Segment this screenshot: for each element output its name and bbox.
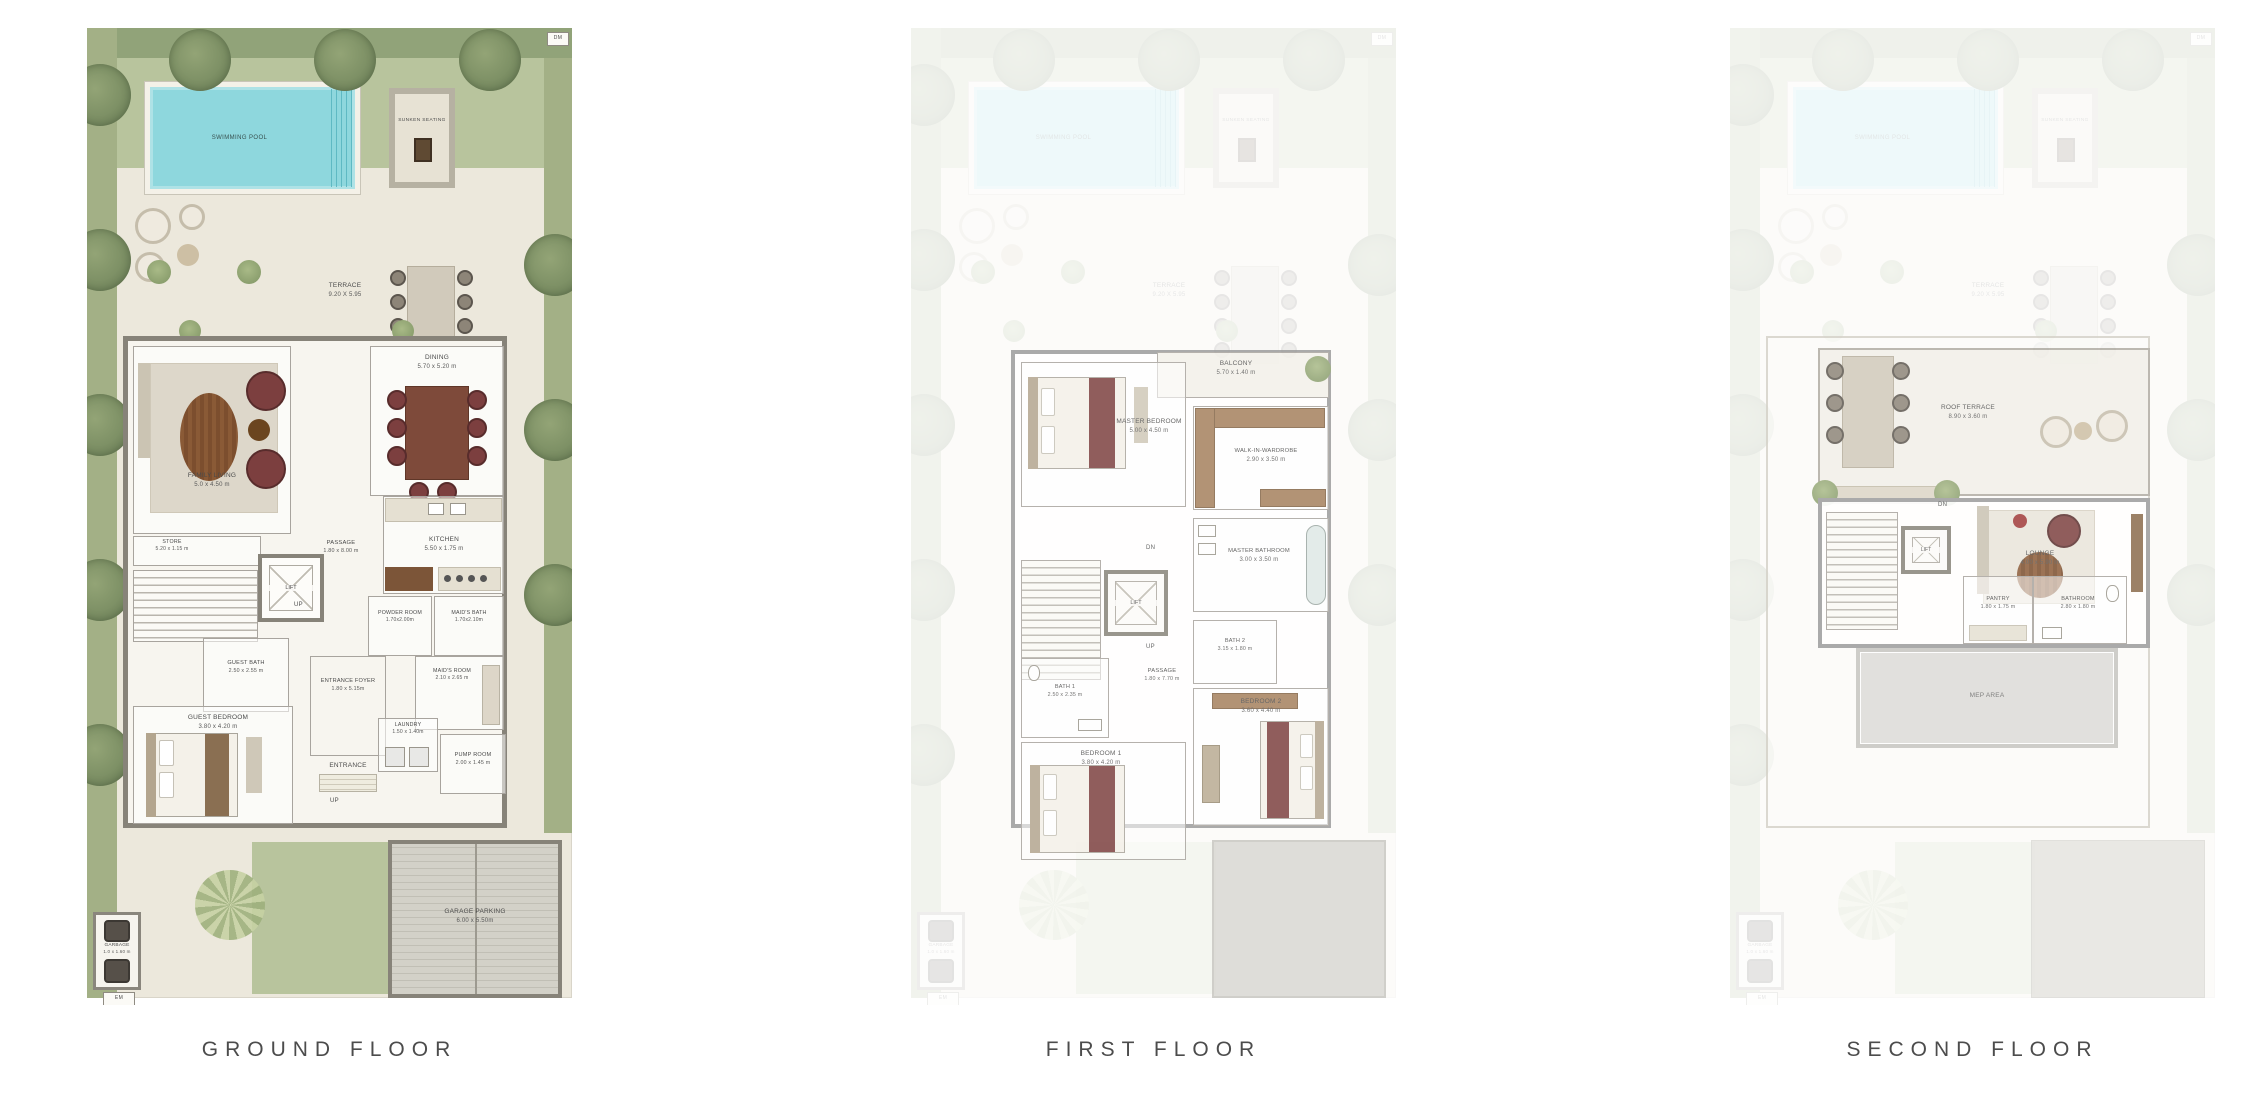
passage-label: PASSAGE 1.80 x 8.00 m <box>313 540 369 555</box>
kitchen-label: KITCHEN 5.50 x 1.75 m <box>399 536 489 553</box>
ground-floor-plan: SWIMMING POOL SUNKEN SEATING TERRACE 9.2… <box>87 20 572 1005</box>
pump-room-label: PUMP ROOM 2.00 x 1.45 m <box>443 752 503 767</box>
terrace-side-table <box>2074 422 2092 440</box>
up-drive-annotation: UP <box>330 798 339 804</box>
first-floor-plan: SWIMMING POOL SUNKEN SEATING TERRACE 9.2… <box>911 20 1396 1005</box>
dining-table <box>405 386 469 480</box>
pillow <box>1043 774 1057 800</box>
lift: LIFT <box>1901 526 1951 574</box>
headboard <box>1030 765 1040 853</box>
terrace-chair <box>1826 362 1844 380</box>
terrace-lounge-chair <box>2096 410 2128 442</box>
guest-bath-label: GUEST BATH 2.50 x 2.55 m <box>209 660 283 675</box>
burner <box>480 575 487 582</box>
bathroom-label: BATHROOM 2.80 x 1.80 m <box>2042 596 2114 611</box>
pouf <box>248 419 270 441</box>
terrace-chair <box>1892 426 1910 444</box>
pantry-counter <box>1969 625 2027 641</box>
wc <box>1028 665 1040 681</box>
bathtub <box>1306 525 1326 605</box>
entrance-label: ENTRANCE <box>317 762 379 771</box>
balcony-plant <box>1305 356 1331 382</box>
room-entrance-foyer <box>310 656 386 756</box>
pantry-label: PANTRY 1.80 x 1.75 m <box>1968 596 2028 611</box>
dining-chair <box>387 446 407 466</box>
master-bathroom-label: MASTER BATHROOM 3.00 x 3.50 m <box>1207 548 1311 564</box>
second-floor-plan: SWIMMING POOL SUNKEN SEATING TERRACE 9.2… <box>1730 20 2215 1005</box>
up-annotation: UP <box>294 602 303 608</box>
bench <box>246 737 262 793</box>
dining-chair <box>467 418 487 438</box>
store-label: STORE 5.20 x 1.15 m <box>137 539 207 553</box>
room-master-bathroom <box>1193 518 1329 612</box>
bed <box>1260 721 1324 819</box>
dining-chair <box>387 390 407 410</box>
garage-roof <box>2031 840 2205 998</box>
washer <box>385 747 405 767</box>
garbage-label: GARBAGE 1.0 x 1.60 m <box>90 943 144 956</box>
maids-room-label: MAID'S ROOM 2.10 x 2.65 m <box>417 668 487 682</box>
dining-chair <box>467 446 487 466</box>
sink <box>450 503 466 515</box>
bedroom-2-label: BEDROOM 2 3.60 x 4.40 m <box>1211 698 1311 715</box>
pillow <box>1041 426 1055 454</box>
first-floor-title: FIRST FLOOR <box>911 1038 1396 1062</box>
terrace-label: TERRACE 9.20 X 5.95 <box>285 282 405 299</box>
wardrobe-unit <box>1260 489 1326 507</box>
family-living-label: FAMILY LIVING 5.0 x 4.50 m <box>157 472 267 489</box>
ground-house-layer: FAMILY LIVING 5.0 x 4.50 m DINING 5.70 x… <box>87 20 572 1005</box>
headboard <box>146 733 156 817</box>
terrace-chair <box>1892 362 1910 380</box>
sofa <box>1202 745 1220 803</box>
burner <box>468 575 475 582</box>
bath-1-label: BATH 1 2.50 x 2.35 m <box>1033 684 1097 699</box>
room-powder <box>368 596 432 656</box>
dining-label: DINING 5.70 x 5.20 m <box>380 354 494 371</box>
lounge-armchair <box>2047 514 2081 548</box>
master-bedroom-label: MASTER BEDROOM 5.00 x 4.50 m <box>1099 418 1199 435</box>
pillow <box>159 740 174 766</box>
burner <box>444 575 451 582</box>
headboard <box>1315 721 1324 819</box>
lift: LIFT <box>258 554 324 622</box>
tv-unit <box>138 363 150 458</box>
staircase <box>133 570 258 642</box>
up-annotation: UP <box>1146 644 1155 650</box>
sink <box>1198 525 1216 537</box>
kitchen-island <box>385 567 433 591</box>
terrace-chair <box>1826 426 1844 444</box>
dn-annotation: DN <box>1146 545 1155 551</box>
room-maids-bath <box>434 596 504 656</box>
balcony-label: BALCONY 5.70 x 1.40 m <box>1191 360 1281 377</box>
second-plan-layer: ROOF TERRACE 8.90 x 3.60 m LIFT DN <box>1730 20 2215 1005</box>
headboard <box>1028 377 1038 469</box>
sink <box>428 503 444 515</box>
terrace-chair <box>1892 394 1910 412</box>
mep-label: MEP AREA <box>1942 692 2032 701</box>
dn-annotation: DN <box>1938 502 1947 508</box>
terrace-chair <box>1826 394 1844 412</box>
entrance-foyer-label: ENTRANCE FOYER 1.80 x 5.15m <box>313 678 383 693</box>
dining-chair <box>467 390 487 410</box>
burner <box>456 575 463 582</box>
bed <box>1030 765 1125 853</box>
sunken-seating-label: SUNKEN SEATING <box>391 118 453 123</box>
powder-label: POWDER ROOM 1.70x2.00m <box>370 610 430 624</box>
accent-stool <box>2013 514 2027 528</box>
bench <box>2131 514 2143 592</box>
dining-chair <box>387 418 407 438</box>
bed-throw <box>1089 766 1115 852</box>
first-plan-layer: BALCONY 5.70 x 1.40 m MASTER BEDROOM 5.0… <box>911 20 1396 1005</box>
entrance-steps <box>319 774 377 792</box>
ground-floor-title: GROUND FLOOR <box>87 1038 572 1062</box>
pillow <box>1041 388 1055 416</box>
pillow <box>1300 734 1313 758</box>
terrace-table <box>1842 356 1894 468</box>
room-guest-bath <box>203 638 289 712</box>
pool-label: SWIMMING POOL <box>150 135 329 141</box>
bath-2-label: BATH 2 3.15 x 1.80 m <box>1203 638 1267 653</box>
bed-throw <box>1267 722 1289 818</box>
room-family-living <box>133 346 291 534</box>
lounge-label: LOUNGE 4.00 x 5.90 m <box>2000 550 2080 567</box>
wardrobe-label: WALK-IN-WARDROBE 2.90 x 3.50 m <box>1211 448 1321 464</box>
guest-bedroom-label: GUEST BEDROOM 3.80 x 4.20 m <box>163 714 273 731</box>
armchair <box>246 371 286 411</box>
coffee-table <box>180 393 238 481</box>
sink <box>2042 627 2062 639</box>
passage-label: PASSAGE 1.80 x 7.70 m <box>1133 668 1191 683</box>
garage-roof <box>1212 840 1386 998</box>
garage-label: GARAGE PARKING 6.00 x 5.50m <box>420 908 530 925</box>
second-floor-title: SECOND FLOOR <box>1730 1038 2215 1062</box>
dryer <box>409 747 429 767</box>
roof-terrace-label: ROOF TERRACE 8.90 x 3.60 m <box>1920 404 2016 421</box>
pillow <box>159 772 174 798</box>
staircase <box>1826 512 1898 630</box>
bedroom-1-label: BEDROOM 1 3.80 x 4.20 m <box>1051 750 1151 767</box>
sink <box>1078 719 1102 731</box>
bed <box>146 733 238 817</box>
terrace-lounge-chair <box>2040 416 2072 448</box>
bed-throw <box>205 734 229 816</box>
pillow <box>1043 810 1057 836</box>
maids-bath-label: MAID'S BATH 1.70x2.10m <box>437 610 501 624</box>
lift: LIFT <box>1104 570 1168 636</box>
laundry-label: LAUNDRY 1.50 x 1.40m <box>379 722 437 736</box>
pillow <box>1300 766 1313 790</box>
